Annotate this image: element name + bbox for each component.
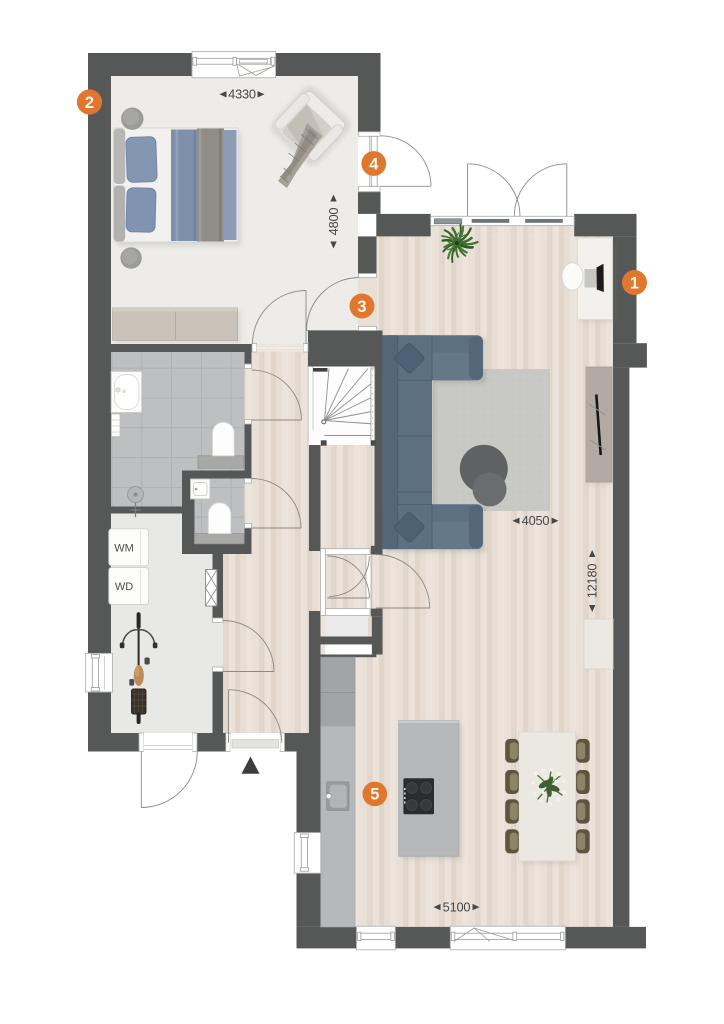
svg-text:WD: WD	[115, 581, 133, 593]
svg-text:2: 2	[85, 94, 94, 112]
svg-text:5100: 5100	[443, 900, 471, 915]
svg-text:5: 5	[370, 786, 379, 804]
svg-text:3: 3	[357, 298, 366, 316]
svg-text:12180: 12180	[585, 564, 600, 599]
svg-text:4800: 4800	[326, 208, 341, 236]
svg-text:1: 1	[630, 274, 639, 292]
svg-text:4050: 4050	[522, 513, 550, 528]
svg-text:4330: 4330	[228, 87, 256, 102]
svg-text:4: 4	[369, 155, 379, 173]
svg-text:WM: WM	[114, 543, 134, 555]
